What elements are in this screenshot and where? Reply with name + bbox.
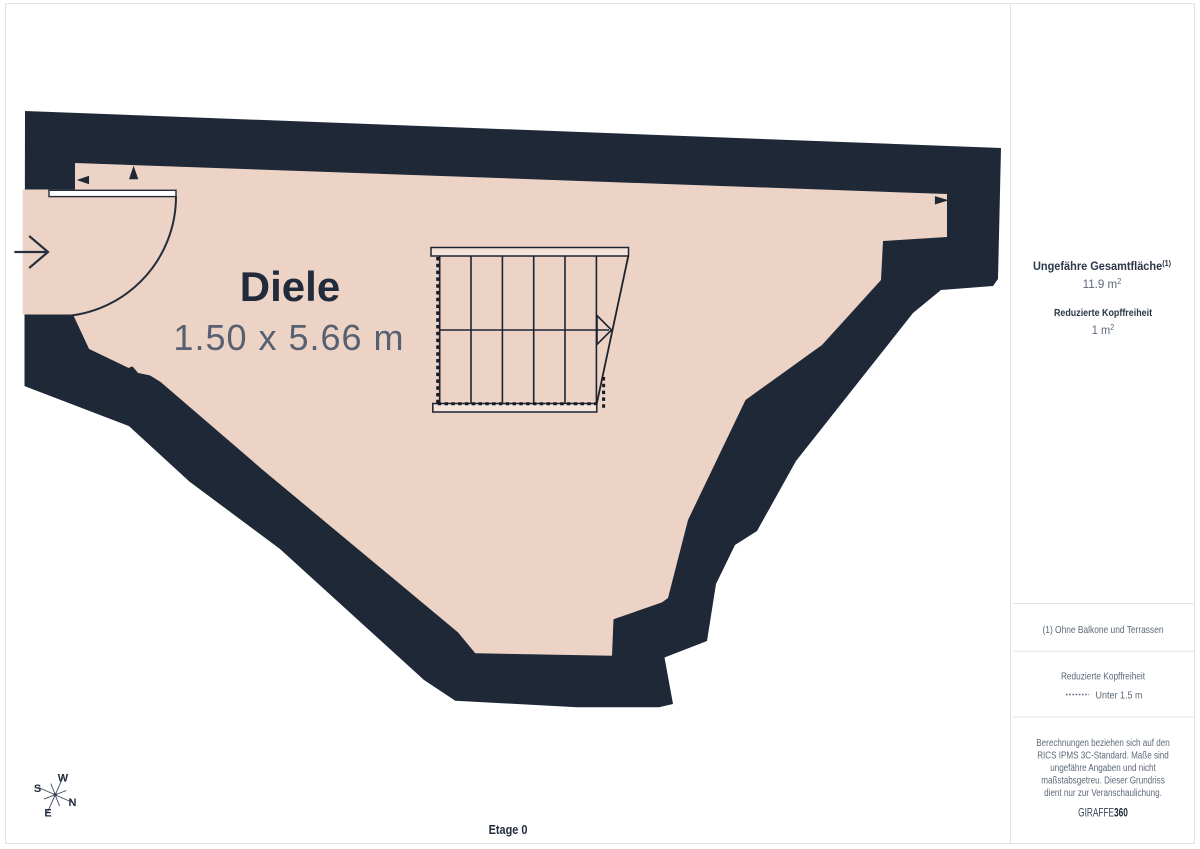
svg-text:GIRAFFE360: GIRAFFE360 <box>1078 807 1128 820</box>
svg-text:ungefähre Angaben und nicht: ungefähre Angaben und nicht <box>1050 762 1156 773</box>
svg-text:Reduzierte Kopffreiheit: Reduzierte Kopffreiheit <box>1054 307 1153 319</box>
svg-text:E: E <box>44 808 51 820</box>
svg-text:Diele: Diele <box>240 263 340 310</box>
svg-text:1.50 x 5.66 m: 1.50 x 5.66 m <box>173 317 404 358</box>
svg-text:W: W <box>58 773 69 785</box>
svg-text:Reduzierte Kopffreiheit: Reduzierte Kopffreiheit <box>1061 671 1146 682</box>
svg-text:RICS IPMS 3C-Standard. Maße si: RICS IPMS 3C-Standard. Maße sind <box>1037 750 1169 761</box>
svg-text:Unter 1.5 m: Unter 1.5 m <box>1096 690 1143 702</box>
svg-text:(1) Ohne Balkone und Terrassen: (1) Ohne Balkone und Terrassen <box>1042 624 1163 635</box>
svg-text:dient nur zur Veranschaulichun: dient nur zur Veranschaulichung. <box>1044 787 1162 798</box>
svg-text:maßstabsgetreu. Dieser Grundri: maßstabsgetreu. Dieser Grundriss <box>1041 775 1165 786</box>
svg-text:Etage 0: Etage 0 <box>489 822 528 837</box>
svg-text:S: S <box>34 783 41 795</box>
svg-text:Ungefähre Gesamtfläche(1): Ungefähre Gesamtfläche(1) <box>1033 258 1171 273</box>
svg-text:Berechnungen beziehen sich auf: Berechnungen beziehen sich auf den <box>1036 737 1169 748</box>
svg-text:11.9 m2: 11.9 m2 <box>1083 277 1122 291</box>
svg-text:N: N <box>69 797 77 809</box>
